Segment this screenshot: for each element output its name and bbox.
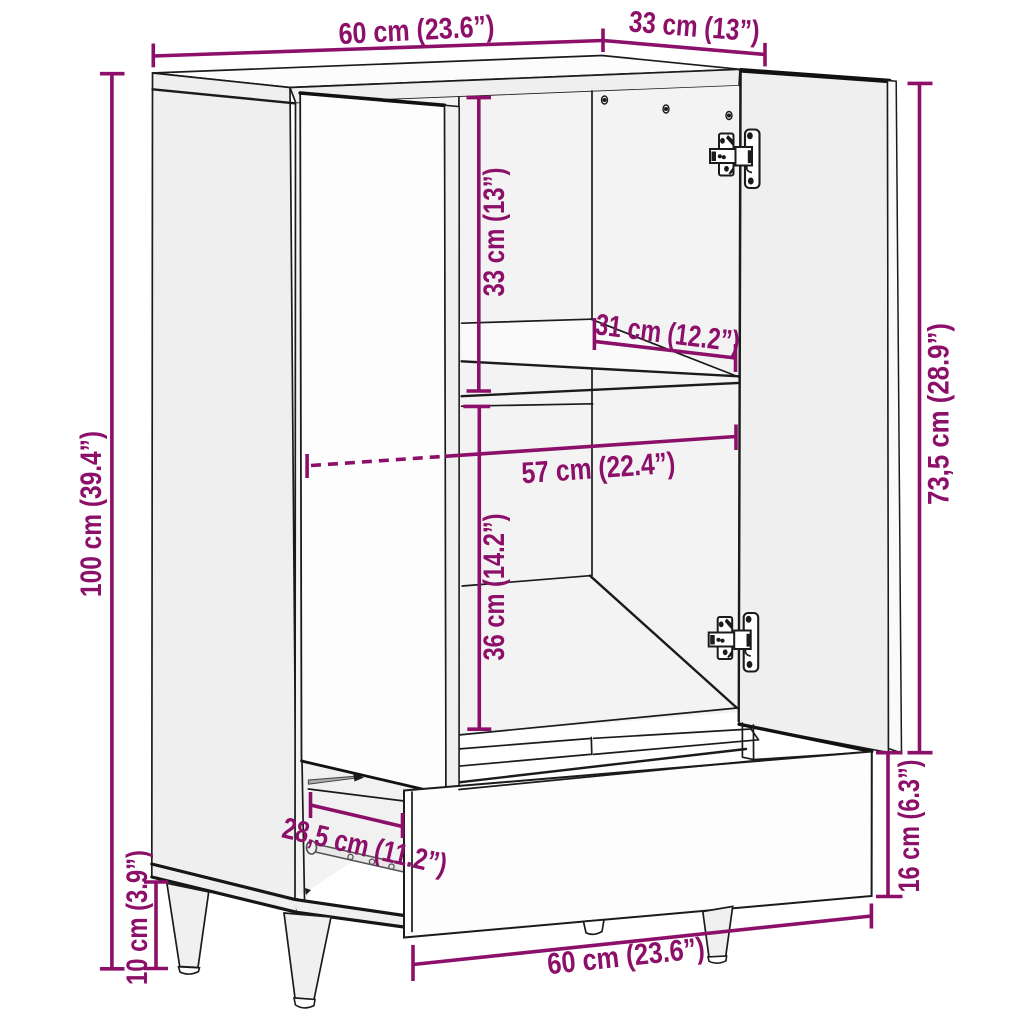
svg-text:10 cm (3.9”): 10 cm (3.9”) (121, 850, 154, 985)
svg-text:36 cm (14.2”): 36 cm (14.2”) (478, 514, 511, 661)
svg-text:100 cm (39.4”): 100 cm (39.4”) (75, 431, 108, 597)
svg-text:16 cm (6.3”): 16 cm (6.3”) (893, 760, 926, 893)
svg-text:73,5 cm (28.9”): 73,5 cm (28.9”) (923, 323, 956, 505)
svg-text:33 cm (13”): 33 cm (13”) (478, 168, 511, 297)
